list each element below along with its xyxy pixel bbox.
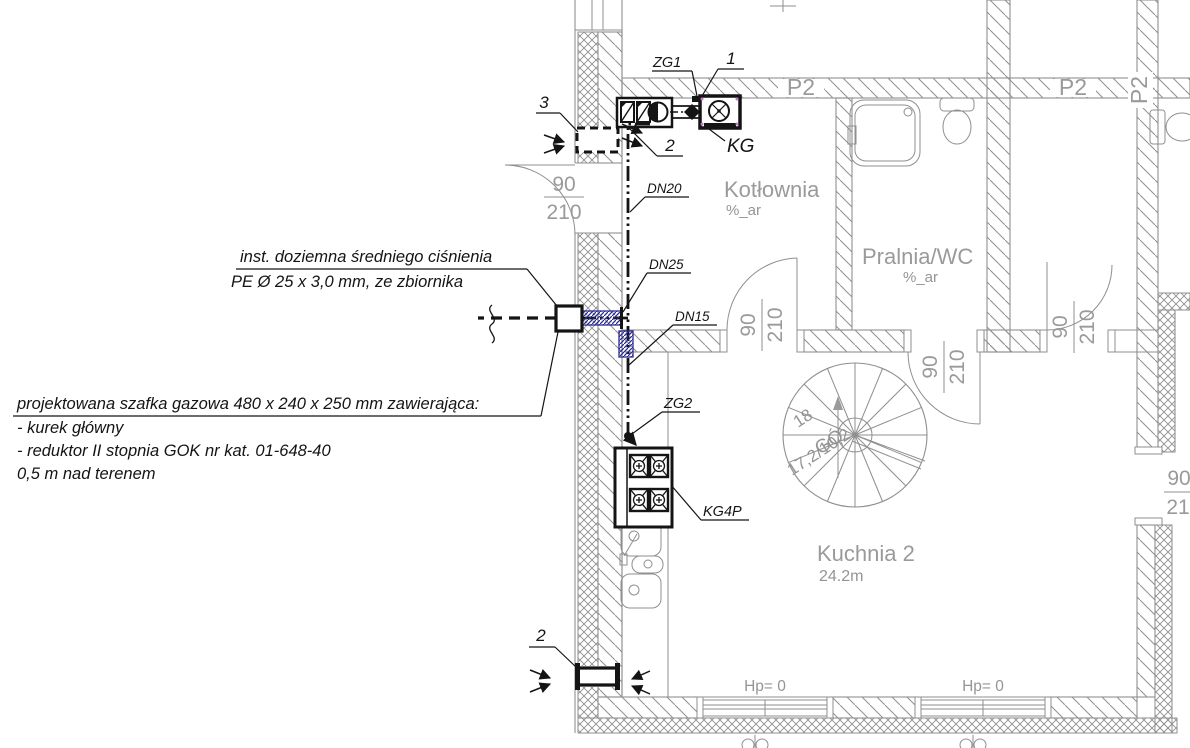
interior-walls <box>622 0 1158 352</box>
svg-text:ZG2: ZG2 <box>663 396 692 412</box>
level-label-hp-a: Hp= 0 <box>744 678 786 695</box>
svg-text:PE Ø 25 x 3,0 mm, ze zbiornika: PE Ø 25 x 3,0 mm, ze zbiornika <box>231 273 463 291</box>
svg-text:inst. doziemna średniego ciśni: inst. doziemna średniego ciśnienia <box>240 248 492 266</box>
gas-boiler-kg <box>670 96 740 128</box>
label-dn20: DN20 <box>630 181 689 212</box>
beam-label-p2-rot: P2 <box>1126 76 1152 104</box>
door-dim-pralnia: 90 210 <box>919 341 969 393</box>
room-label-kotlownia: Kotłownia <box>724 177 820 202</box>
svg-text:210: 210 <box>546 201 581 224</box>
svg-text:21: 21 <box>1166 496 1189 519</box>
room-area-kuchnia: 24.2m <box>819 568 863 585</box>
gas-stove <box>615 448 672 527</box>
shower <box>848 100 920 166</box>
room-area-kotlownia: %_ar <box>726 202 761 219</box>
door-dim-right-edge: 90 21 <box>1164 467 1190 519</box>
svg-text:1: 1 <box>726 49 735 68</box>
note-underground: inst. doziemna średniego ciśnienia PE Ø … <box>231 248 557 306</box>
svg-text:90: 90 <box>1167 467 1190 490</box>
gas-installation-floor-plan: P2 P2 P2 Kotłownia %_ar Pralnia/WC %_ar … <box>0 0 1190 748</box>
zg2-valve <box>624 432 636 445</box>
svg-text:KG4P: KG4P <box>703 504 742 520</box>
gas-cabinet-box <box>556 306 582 331</box>
svg-text:90: 90 <box>737 313 760 336</box>
svg-text:210: 210 <box>946 349 969 384</box>
beam-label-p2-a: P2 <box>787 74 815 100</box>
svg-text:210: 210 <box>764 307 787 342</box>
label-kg: KG <box>709 129 754 157</box>
note-gas-cabinet: projektowana szafka gazowa 480 x 240 x 2… <box>13 332 558 483</box>
left-exterior-wall <box>575 0 622 733</box>
svg-text:3: 3 <box>539 93 549 112</box>
beam-label-p2-b: P2 <box>1059 74 1087 100</box>
door-dim-exterior: 90 210 <box>544 173 584 224</box>
label-dn25: DN25 <box>623 257 691 312</box>
door-dim-corridor: 90 210 <box>1049 301 1099 353</box>
svg-text:ZG1: ZG1 <box>652 55 681 71</box>
callout-3: 3 <box>536 93 578 132</box>
room-label-kuchnia: Kuchnia 2 <box>817 541 915 566</box>
label-kg4p: KG4P <box>671 485 749 520</box>
svg-text:- reduktor II stopnia GOK nr k: - reduktor II stopnia GOK nr kat. 01-648… <box>17 442 331 460</box>
svg-text:DN20: DN20 <box>647 181 682 196</box>
callout-2-bottom: 2 <box>529 626 576 667</box>
gas-piping <box>478 124 650 436</box>
svg-text:2: 2 <box>664 136 675 155</box>
bottom-wall-and-windows <box>578 697 1177 748</box>
room-label-pralnia: Pralnia/WC <box>862 244 973 269</box>
spiral-staircase <box>783 363 927 507</box>
svg-text:2: 2 <box>535 626 546 645</box>
callout-2-top: 2 <box>629 128 683 156</box>
room-area-pralnia: %_ar <box>903 269 938 286</box>
floor-plan-svg: P2 P2 P2 Kotłownia %_ar Pralnia/WC %_ar … <box>0 0 1190 748</box>
svg-text:90: 90 <box>919 355 942 378</box>
svg-text:0,5 m nad terenem: 0,5 m nad terenem <box>17 465 156 483</box>
door-dim-kotlownia: 90 210 <box>737 299 787 351</box>
toilet-pralnia <box>940 98 974 144</box>
label-zg2: ZG2 <box>632 396 700 434</box>
svg-text:DN25: DN25 <box>649 257 684 272</box>
level-label-hp-b: Hp= 0 <box>962 678 1004 695</box>
svg-text:90: 90 <box>1049 315 1072 338</box>
svg-text:DN15: DN15 <box>675 309 710 324</box>
stair-labels: 18 GÓ 17,2/10,2 <box>784 405 854 479</box>
svg-text:210: 210 <box>1076 309 1099 344</box>
svg-text:KG: KG <box>727 136 754 157</box>
svg-text:projektowana szafka gazowa 480: projektowana szafka gazowa 480 x 240 x 2… <box>16 395 479 413</box>
svg-text:- kurek główny: - kurek główny <box>17 419 125 437</box>
top-beam-band <box>622 0 1190 98</box>
svg-text:90: 90 <box>552 173 575 196</box>
